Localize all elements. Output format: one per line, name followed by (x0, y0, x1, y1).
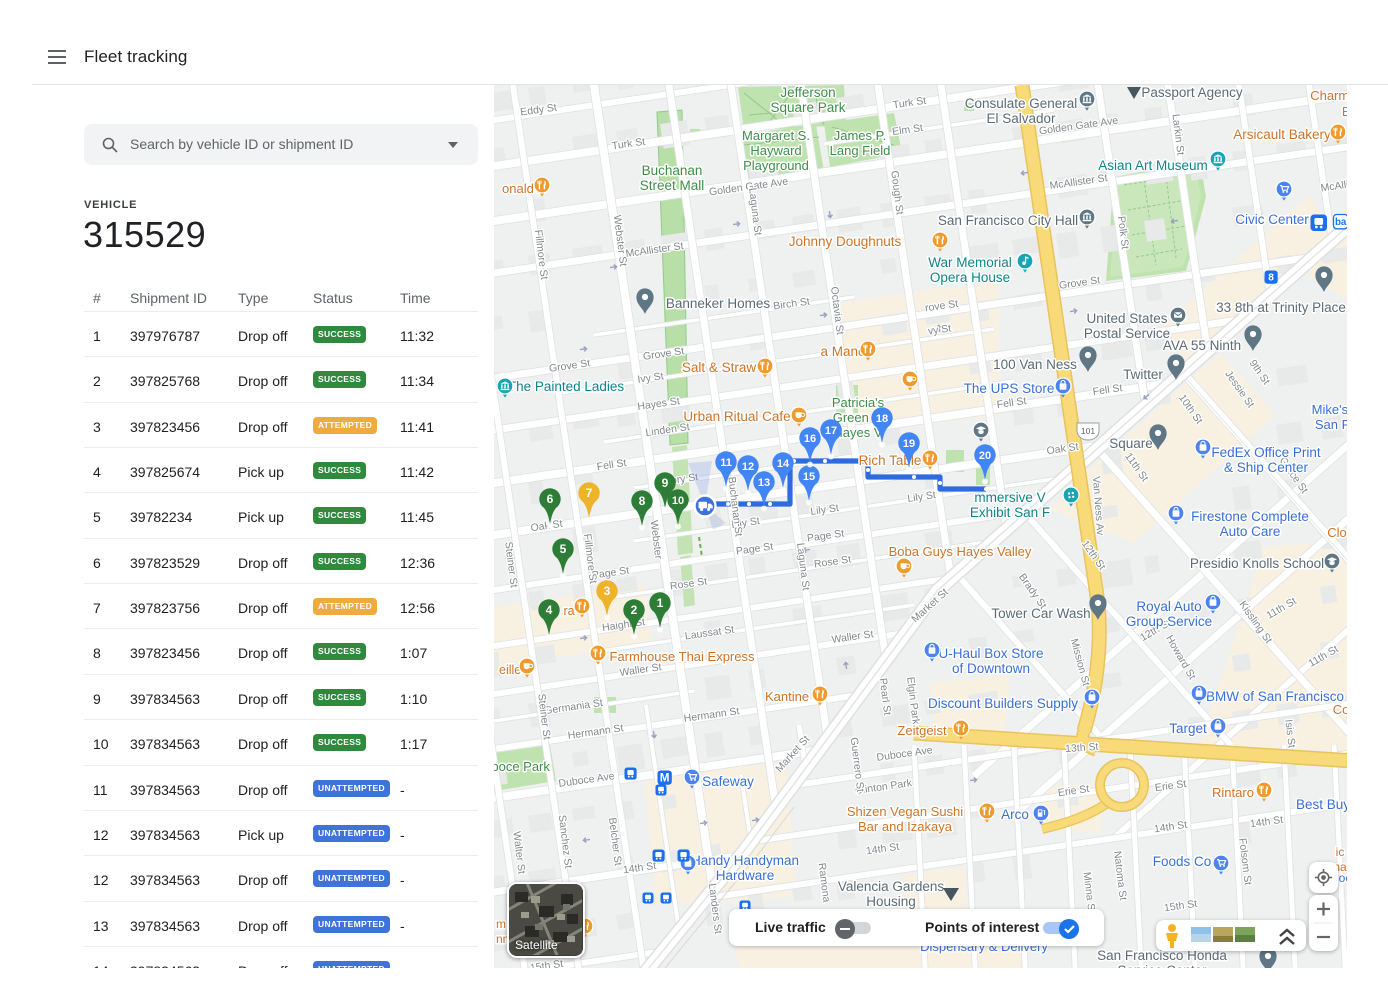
svg-text:Exhibit San F: Exhibit San F (970, 505, 1050, 520)
svg-text:Royal Auto: Royal Auto (1136, 599, 1201, 614)
svg-text:17: 17 (825, 425, 837, 437)
svg-text:United States: United States (1086, 311, 1167, 326)
svg-text:FedEx Office Print: FedEx Office Print (1211, 445, 1321, 460)
svg-text:Discount Builders Supply: Discount Builders Supply (928, 696, 1078, 711)
svg-text:Postal Service: Postal Service (1084, 326, 1170, 341)
svg-text:U-Haul Box Store: U-Haul Box Store (938, 646, 1043, 661)
svg-text:Group Service: Group Service (1126, 614, 1212, 629)
svg-text:9: 9 (662, 476, 669, 490)
svg-text:Boba Guys Hayes Valley: Boba Guys Hayes Valley (889, 544, 1032, 559)
svg-text:Auto Care: Auto Care (1220, 524, 1281, 539)
svg-text:M: M (660, 772, 670, 785)
svg-text:15: 15 (803, 471, 815, 483)
svg-text:11: 11 (720, 457, 732, 469)
svg-text:33 8th at Trinity Place: 33 8th at Trinity Place (1216, 300, 1346, 315)
svg-text:ra: ra (563, 604, 574, 618)
svg-text:AVA 55 Ninth: AVA 55 Ninth (1163, 338, 1241, 353)
svg-text:2: 2 (631, 603, 638, 617)
svg-text:Salt & Straw: Salt & Straw (682, 360, 757, 375)
svg-text:6: 6 (547, 492, 554, 506)
svg-text:20: 20 (979, 450, 991, 462)
svg-text:Hardware: Hardware (716, 868, 775, 883)
svg-text:Square: Square (1109, 436, 1153, 451)
svg-text:Bar: Bar (1342, 104, 1347, 119)
svg-text:Street Mall: Street Mall (640, 178, 705, 193)
svg-text:of Downtown: of Downtown (952, 661, 1030, 676)
svg-text:16: 16 (804, 433, 816, 445)
svg-text:Target: Target (1169, 721, 1207, 736)
svg-text:Shizen Vegan Sushi: Shizen Vegan Sushi (847, 804, 963, 819)
svg-text:Asian Art Museum: Asian Art Museum (1098, 158, 1208, 173)
svg-text:Playground: Playground (743, 158, 809, 173)
svg-text:eille: eille (499, 663, 521, 677)
svg-text:100 Van Ness: 100 Van Ness (993, 357, 1077, 372)
svg-text:Twitter: Twitter (1123, 367, 1163, 382)
svg-text:19: 19 (903, 438, 915, 450)
svg-text:Housing: Housing (866, 894, 916, 909)
svg-text:5: 5 (560, 542, 567, 556)
svg-text:Co: Co (1333, 702, 1347, 717)
svg-text:Hayward: Hayward (750, 143, 801, 158)
svg-text:Buchanan: Buchanan (642, 163, 703, 178)
svg-text:uboce Park: uboce Park (494, 759, 550, 774)
svg-text:Square Park: Square Park (770, 100, 845, 115)
svg-text:8: 8 (639, 494, 646, 508)
svg-text:Handy Handyman: Handy Handyman (691, 853, 799, 868)
svg-text:3: 3 (604, 584, 611, 598)
svg-text:Johnny Doughnuts: Johnny Doughnuts (789, 234, 902, 249)
svg-text:1: 1 (657, 596, 664, 610)
svg-text:mmersive V: mmersive V (974, 490, 1045, 505)
svg-text:War Memorial: War Memorial (928, 255, 1012, 270)
svg-text:Tower Car Wash: Tower Car Wash (991, 606, 1090, 621)
svg-text:14: 14 (777, 458, 790, 470)
svg-text:Presidio Knolls School: Presidio Knolls School (1190, 556, 1324, 571)
svg-text:7: 7 (586, 486, 593, 500)
svg-text:Clo: Clo (1327, 525, 1347, 540)
svg-text:Passport Agency: Passport Agency (1141, 85, 1243, 100)
svg-text:12: 12 (742, 461, 754, 473)
svg-text:Kantine: Kantine (765, 689, 809, 704)
svg-text:Margaret S.: Margaret S. (742, 128, 810, 143)
svg-text:10: 10 (672, 495, 684, 507)
svg-text:El Salvador: El Salvador (986, 111, 1056, 126)
svg-text:101: 101 (1081, 426, 1095, 436)
svg-text:Rintaro: Rintaro (1212, 785, 1254, 800)
svg-text:Zeitgeist: Zeitgeist (897, 723, 947, 738)
svg-text:Patricia's: Patricia's (832, 395, 885, 410)
svg-text:San Fra: San Fra (1315, 417, 1347, 432)
svg-text:Foods Co: Foods Co (1153, 854, 1212, 869)
svg-text:Mike's E: Mike's E (1312, 402, 1347, 417)
svg-text:Arsicault Bakery: Arsicault Bakery (1233, 127, 1331, 142)
svg-text:oc: oc (1339, 871, 1347, 885)
svg-text:Lang Field: Lang Field (830, 143, 891, 158)
svg-text:& Ship Center: & Ship Center (1224, 460, 1309, 475)
svg-text:Service Center: Service Center (1117, 963, 1207, 968)
svg-text:Consulate General: Consulate General (965, 96, 1078, 111)
svg-text:ic: ic (1336, 845, 1345, 859)
svg-text:Charmaine: Charmaine (1310, 88, 1347, 103)
svg-text:8: 8 (1268, 273, 1274, 284)
svg-text:Banneker Homes: Banneker Homes (666, 296, 771, 311)
svg-text:13: 13 (758, 477, 770, 489)
svg-text:Jefferson: Jefferson (780, 85, 835, 100)
svg-text:a Mano: a Mano (820, 344, 865, 359)
svg-text:13th St: 13th St (1065, 741, 1099, 755)
svg-text:4: 4 (546, 603, 553, 617)
svg-text:ba: ba (1335, 217, 1347, 228)
svg-text:Best Buy: Best Buy (1296, 797, 1347, 812)
svg-text:Farmhouse Thai Express: Farmhouse Thai Express (610, 649, 755, 664)
svg-text:Safeway: Safeway (702, 774, 754, 789)
svg-text:18: 18 (876, 413, 888, 425)
svg-text:BMW of San Francisco: BMW of San Francisco (1206, 689, 1344, 704)
svg-text:Firestone Complete: Firestone Complete (1191, 509, 1309, 524)
svg-text:The UPS Store: The UPS Store (964, 381, 1055, 396)
svg-text:Arco: Arco (1001, 807, 1029, 822)
svg-text:Bar and Izakaya: Bar and Izakaya (858, 819, 953, 834)
svg-text:m: m (496, 917, 506, 931)
svg-text:Urban Ritual Cafe: Urban Ritual Cafe (683, 409, 790, 424)
svg-text:San Francisco City Hall: San Francisco City Hall (938, 213, 1078, 228)
svg-text:Opera House: Opera House (930, 270, 1010, 285)
svg-text:Civic Center: Civic Center (1235, 212, 1309, 227)
svg-text:Valencia Gardens: Valencia Gardens (838, 879, 945, 894)
svg-text:The Painted Ladies: The Painted Ladies (508, 379, 625, 394)
svg-text:James P.: James P. (834, 128, 887, 143)
